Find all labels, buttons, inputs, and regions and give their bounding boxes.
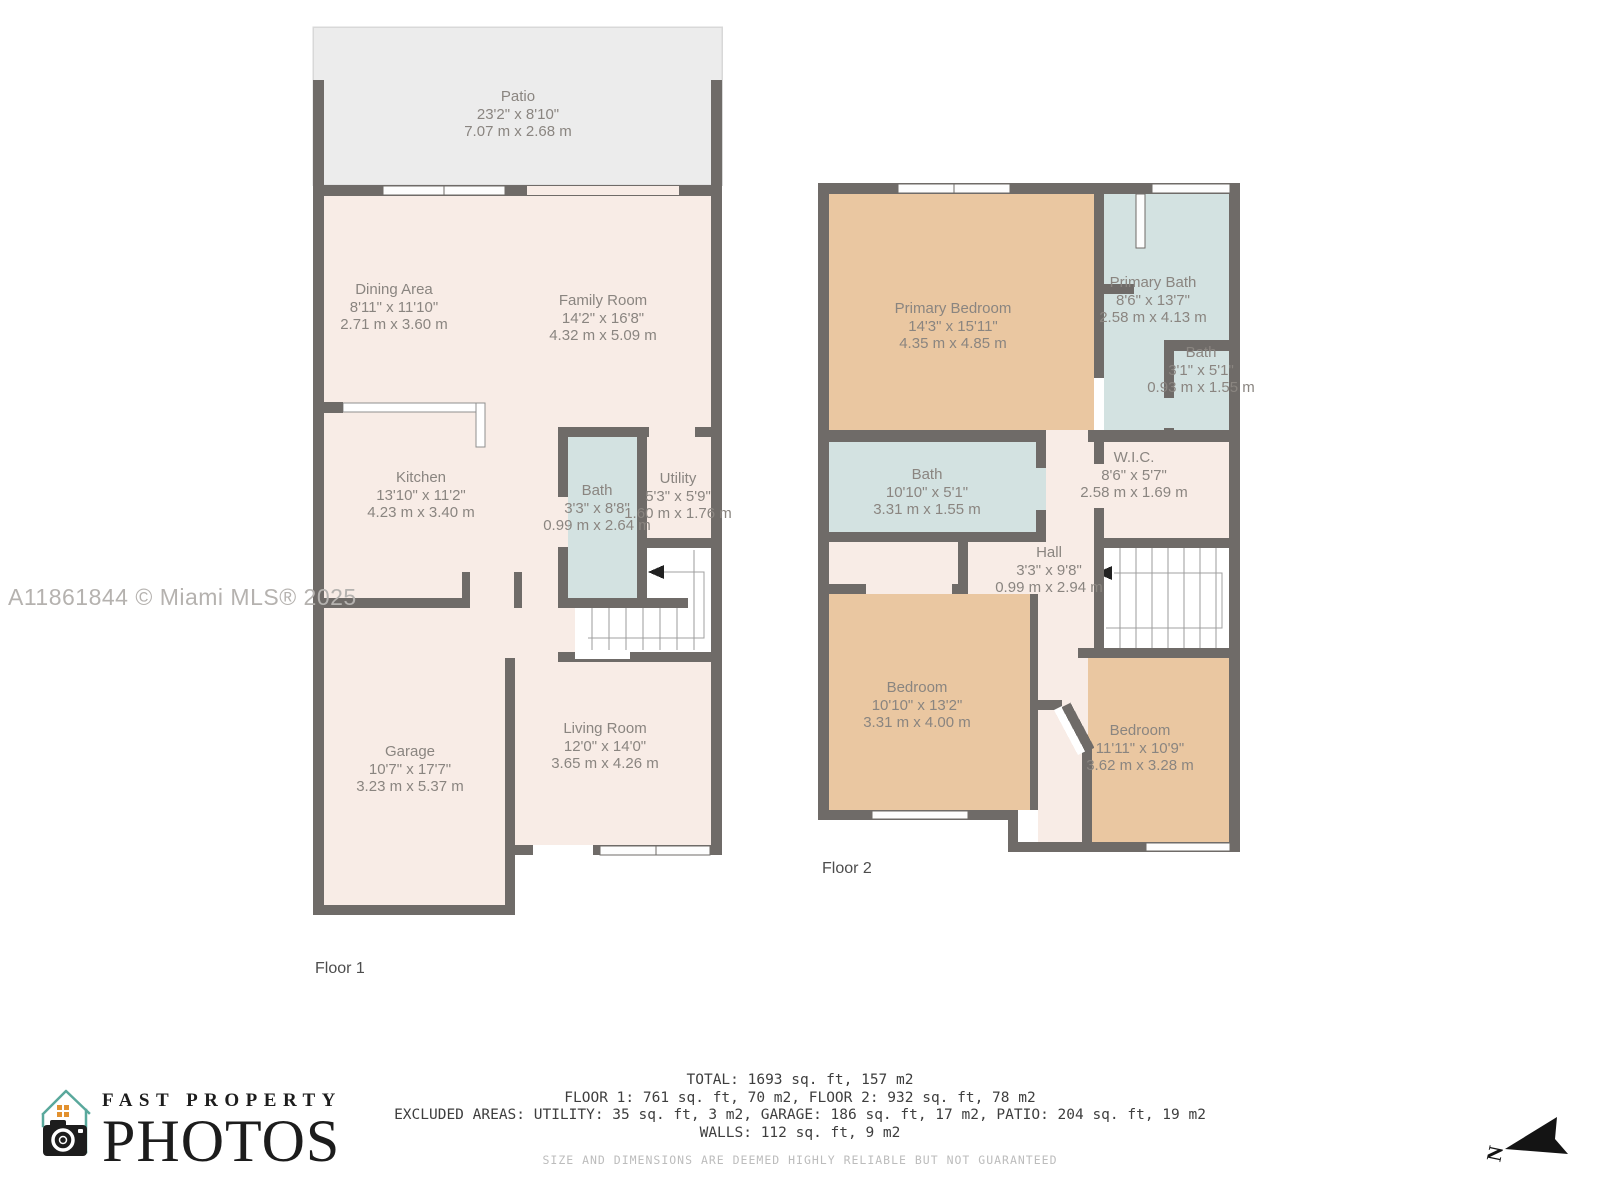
room-name: W.I.C.: [1080, 449, 1188, 467]
room-label-dining-area: Dining Area 8'11" x 11'10" 2.71 m x 3.60…: [340, 281, 448, 334]
room-dims-metric: 2.58 m x 4.13 m: [1099, 309, 1207, 327]
room-dims-imperial: 10'7" x 17'7": [356, 761, 464, 779]
room-label-primary-bedroom: Primary Bedroom 14'3" x 15'11" 4.35 m x …: [895, 300, 1012, 353]
mls-watermark: A11861844 © Miami MLS® 2025: [8, 584, 357, 611]
room-dims-imperial: 14'2" x 16'8": [549, 310, 657, 328]
room-dims-metric: 3.62 m x 3.28 m: [1086, 757, 1194, 775]
room-name: Utility: [624, 470, 732, 488]
room-dims-imperial: 13'10" x 11'2": [367, 487, 475, 505]
entry-door-opening: [533, 845, 593, 855]
room-dims-metric: 7.07 m x 2.68 m: [464, 123, 572, 141]
patio-slider-opening: [527, 186, 679, 195]
room-label-living-room: Living Room 12'0" x 14'0" 3.65 m x 4.26 …: [551, 720, 659, 773]
room-dims-metric: 3.65 m x 4.26 m: [551, 755, 659, 773]
room-dims-imperial: 8'6" x 5'7": [1080, 467, 1188, 485]
primary-bedroom-door-opening: [1046, 430, 1088, 442]
room-label-bedroom-left: Bedroom 10'10" x 13'2" 3.31 m x 4.00 m: [863, 679, 971, 732]
garage-door-opening: [470, 598, 514, 608]
fast-property-photos-logo: FAST PROPERTY PHOTOS: [40, 1082, 100, 1167]
bath2-door-opening: [1036, 468, 1046, 510]
room-dims-metric: 3.23 m x 5.37 m: [356, 778, 464, 796]
room-label-bath-small: Bath 3'1" x 5'1" 0.93 m x 1.55 m: [1147, 344, 1255, 397]
room-name: Bath: [873, 466, 981, 484]
room-label-bath2: Bath 10'10" x 5'1" 3.31 m x 1.55 m: [873, 466, 981, 519]
logo-text: FAST PROPERTY PHOTOS: [102, 1090, 342, 1169]
room-dims-metric: 4.32 m x 5.09 m: [549, 327, 657, 345]
house-window-icon: [57, 1105, 69, 1117]
room-name: Garage: [356, 743, 464, 761]
floor1-label: Floor 1: [315, 960, 365, 978]
room-dims-imperial: 10'10" x 13'2": [863, 697, 971, 715]
room-dims-imperial: 8'11" x 11'10": [340, 299, 448, 317]
north-arrow-icon: N: [1470, 1085, 1590, 1175]
room-label-utility: Utility 5'3" x 5'9" 1.60 m x 1.76 m: [624, 470, 732, 523]
room-dims-imperial: 23'2" x 8'10": [464, 106, 572, 124]
room-label-garage: Garage 10'7" x 17'7" 3.23 m x 5.37 m: [356, 743, 464, 796]
room-dims-imperial: 3'3" x 9'8": [995, 562, 1103, 580]
room-dims-metric: 2.71 m x 3.60 m: [340, 316, 448, 334]
stairs-floor2: [1096, 548, 1229, 648]
room-label-wic: W.I.C. 8'6" x 5'7" 2.58 m x 1.69 m: [1080, 449, 1188, 502]
bedroom-right-window: [1146, 843, 1230, 851]
room-dims-imperial: 5'3" x 5'9": [624, 488, 732, 506]
room-label-kitchen: Kitchen 13'10" x 11'2" 4.23 m x 3.40 m: [367, 469, 475, 522]
room-name: Dining Area: [340, 281, 448, 299]
room-name: Primary Bedroom: [895, 300, 1012, 318]
room-dims-imperial: 3'1" x 5'1": [1147, 362, 1255, 380]
room-dims-imperial: 11'11" x 10'9": [1086, 740, 1194, 758]
room-name: Kitchen: [367, 469, 475, 487]
primary-bath-window: [1152, 184, 1230, 193]
primary-bath-door-opening: [1094, 378, 1104, 430]
room-name: Living Room: [551, 720, 659, 738]
floor2-label: Floor 2: [822, 860, 872, 878]
logo-line2: PHOTOS: [102, 1114, 342, 1169]
room-label-primary-bath: Primary Bath 8'6" x 13'7" 2.58 m x 4.13 …: [1099, 274, 1207, 327]
floorplan-page: { "watermark": "A11861844 © Miami MLS® 2…: [0, 0, 1600, 1200]
room-dims-imperial: 12'0" x 14'0": [551, 738, 659, 756]
room-dims-metric: 4.23 m x 3.40 m: [367, 504, 475, 522]
primary-bath-partition: [1136, 194, 1145, 248]
north-label: N: [1482, 1144, 1509, 1164]
room-dims-metric: 2.58 m x 1.69 m: [1080, 484, 1188, 502]
room-dims-metric: 3.31 m x 1.55 m: [873, 501, 981, 519]
camera-icon: [43, 1120, 87, 1156]
room-label-bedroom-right: Bedroom 11'11" x 10'9" 3.62 m x 3.28 m: [1086, 722, 1194, 775]
small-bath-door-opening: [1164, 398, 1174, 428]
room-name: Hall: [995, 544, 1103, 562]
room-label-patio: Patio 23'2" x 8'10" 7.07 m x 2.68 m: [464, 88, 572, 141]
utility-door-opening: [649, 427, 695, 437]
room-label-family-room: Family Room 14'2" x 16'8" 4.32 m x 5.09 …: [549, 292, 657, 345]
bedroom-left-window: [872, 811, 968, 819]
room-name: Primary Bath: [1099, 274, 1207, 292]
stairs-landing: [575, 650, 630, 659]
room-label-hall: Hall 3'3" x 9'8" 0.99 m x 2.94 m: [995, 544, 1103, 597]
logo-house-camera-icon: [40, 1082, 100, 1162]
room-dims-metric: 0.93 m x 1.55 m: [1147, 379, 1255, 397]
room-name: Bedroom: [1086, 722, 1194, 740]
living-room-window: [600, 846, 710, 855]
room-dims-imperial: 10'10" x 5'1": [873, 484, 981, 502]
room-dims-metric: 1.60 m x 1.76 m: [624, 505, 732, 523]
room-dims-metric: 0.99 m x 2.94 m: [995, 579, 1103, 597]
bedroom-left-door-opening: [866, 584, 952, 594]
total-area: TOTAL: 1693 sq. ft, 157 m2: [0, 1072, 1600, 1090]
room-dims-imperial: 14'3" x 15'11": [895, 318, 1012, 336]
room-name: Bath: [1147, 344, 1255, 362]
room-name: Patio: [464, 88, 572, 106]
room-dims-imperial: 8'6" x 13'7": [1099, 292, 1207, 310]
room-name: Bedroom: [863, 679, 971, 697]
room-dims-metric: 4.35 m x 4.85 m: [895, 335, 1012, 353]
room-name: Family Room: [549, 292, 657, 310]
room-dims-metric: 3.31 m x 4.00 m: [863, 714, 971, 732]
